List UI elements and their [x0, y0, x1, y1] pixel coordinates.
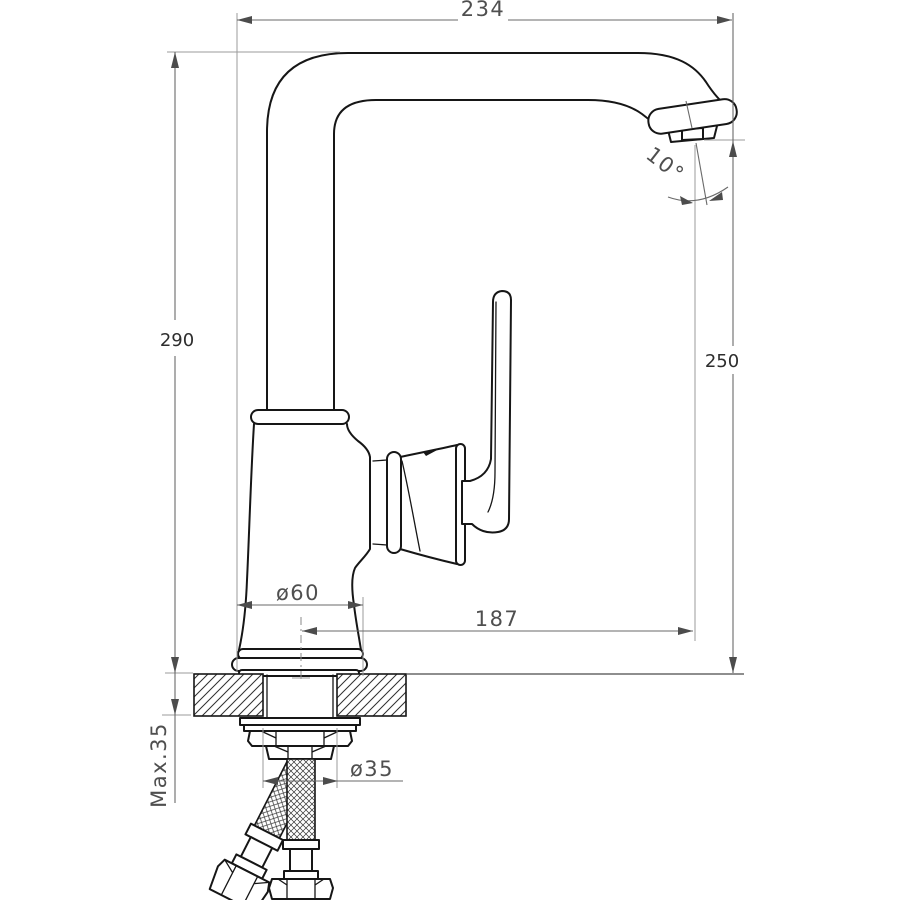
dim-10deg: 10°: [641, 142, 728, 205]
dim-label-max35: Max.35: [147, 722, 171, 808]
spout-end-cap: [647, 97, 739, 135]
riser-flange: [251, 410, 349, 424]
drawing-canvas: 234 290 Max.35 250 10°: [0, 0, 900, 900]
shank-tube: [267, 675, 333, 718]
arrowhead: [323, 777, 338, 785]
cartridge-ring: [387, 452, 401, 553]
hose-adapter-nut: [266, 746, 334, 759]
dim-187: 187: [302, 607, 693, 635]
arrowhead: [171, 52, 179, 68]
body-arm-profile: [347, 424, 370, 650]
arrowhead: [729, 141, 737, 157]
arrowhead: [302, 627, 317, 635]
water-stream-line: [696, 143, 707, 205]
dim-label-250: 250: [705, 351, 739, 372]
dim-label-10deg: 10°: [641, 142, 689, 187]
arm-neck-top: [373, 460, 387, 461]
arrowhead: [171, 699, 179, 715]
mounting-nut: [248, 731, 352, 746]
dim-label-234: 234: [461, 0, 506, 21]
dim-290: 290 Max.35: [147, 52, 197, 808]
body-left-profile: [239, 424, 254, 650]
arm-neck-bottom: [373, 544, 387, 545]
dim-label-o35: ø35: [350, 757, 394, 781]
countertop-right-block: [337, 674, 406, 716]
arrowhead: [263, 777, 278, 785]
arrowhead: [678, 627, 693, 635]
faucet-technical-drawing: 234 290 Max.35 250 10°: [0, 0, 900, 900]
dim-234: 234: [237, 0, 732, 24]
faucet-outline: [194, 53, 744, 900]
arrowhead: [237, 16, 252, 24]
dim-o60: ø60: [237, 581, 363, 609]
dim-label-187: 187: [475, 607, 520, 631]
handle-lever: [462, 291, 511, 533]
washer-plate-1: [240, 718, 360, 725]
arrowhead: [348, 601, 363, 609]
dim-label-290: 290: [160, 330, 194, 351]
arrowhead: [171, 657, 179, 673]
countertop-left-block: [194, 674, 263, 716]
dim-label-o60: ø60: [276, 581, 320, 605]
cartridge-cone: [400, 445, 457, 564]
arrowhead: [729, 657, 737, 673]
arrowhead: [717, 16, 732, 24]
